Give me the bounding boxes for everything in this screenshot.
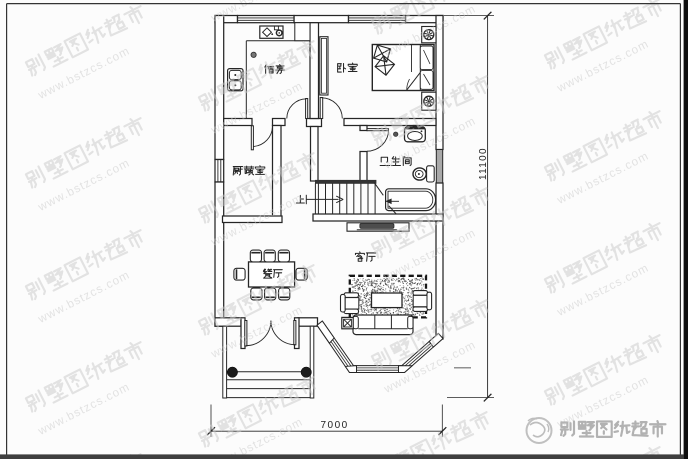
svg-text:11100: 11100	[478, 147, 489, 180]
svg-text:7000: 7000	[321, 420, 349, 431]
